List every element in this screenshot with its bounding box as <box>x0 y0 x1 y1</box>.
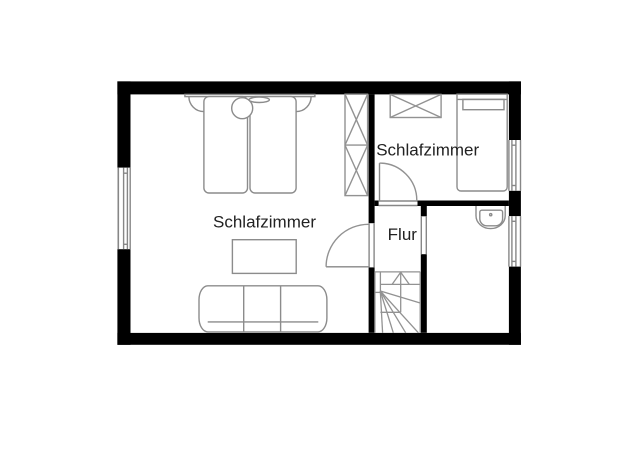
svg-text:Schlafzimmer: Schlafzimmer <box>376 141 479 160</box>
svg-text:Schlafzimmer: Schlafzimmer <box>213 212 316 231</box>
svg-text:Flur: Flur <box>388 225 418 244</box>
